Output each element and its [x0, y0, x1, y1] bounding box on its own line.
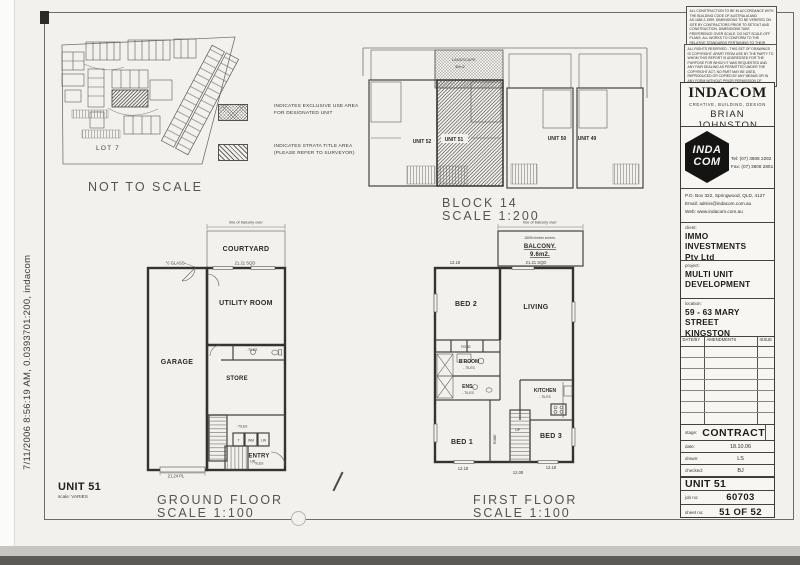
block-14-plan: LANDSCAPE 30m2 UNIT 52 UNIT 51 UNIT 50 U…: [355, 38, 655, 223]
location-street: 59 - 63 MARY STREET: [685, 307, 770, 328]
location-suburb: KINGSTON: [685, 328, 770, 337]
unit-49-label: UNIT 49: [578, 136, 597, 142]
dimension-bed3: 12.18: [546, 465, 557, 470]
site-plan-caption: NOT TO SCALE: [88, 180, 203, 194]
stairs-upper: [209, 415, 227, 461]
location-section: location: 59 - 63 MARY STREET KINGSTON: [681, 299, 774, 337]
job-label: job no:: [685, 495, 711, 500]
room-label-bed1: BED 1: [451, 439, 473, 446]
stairs-lower: [225, 446, 248, 470]
stair-up-label: UP: [250, 459, 256, 464]
logo-text-line: COM: [693, 157, 720, 169]
construction-notes: ALL CONSTRUCTION TO BE IN ACCORDANCE WIT…: [686, 6, 777, 45]
closet-label-lin: LIN: [261, 439, 267, 443]
room-label-balcony: BALCONY.: [524, 244, 556, 250]
closet-label-wm: WM: [248, 439, 254, 443]
balcony-over-note: line of balcony over: [229, 220, 263, 225]
project-name-line2: DEVELOPMENT: [685, 279, 770, 289]
scanned-architectural-sheet: 7/11/2006 8:56:19 AM, 0.0393701:200, ind…: [0, 0, 800, 565]
dimension-bed1: 12.18: [458, 466, 469, 471]
room-label-garage: GARAGE: [161, 359, 194, 366]
landscape-label: LANDSCAPE: [452, 57, 476, 62]
unit-50-label: UNIT 50: [548, 136, 567, 142]
company-tagline: CREATIVE, BUILDING, DESIGN: [681, 102, 774, 107]
room-label-living: LIVING: [523, 304, 548, 311]
email-address: Email: admin@indacom.com.au: [685, 200, 770, 208]
stair-up-label: UP: [515, 427, 521, 432]
phone-number: Tel: (07) 3808 2292: [731, 155, 773, 163]
legend-text-line: INDICATES STRATA TITLE AREA: [274, 144, 355, 151]
date-value: 18.10.06: [711, 444, 770, 450]
indacom-cube-logo: INDA COM: [685, 131, 729, 183]
amendments-empty-row: [681, 413, 774, 424]
stairs: [510, 410, 530, 462]
legend-text-line: (PLEASE REFER TO SURVEYOR): [274, 151, 355, 158]
room-label-bed2: BED 2: [455, 301, 477, 308]
scale-label: scale:: [58, 494, 70, 499]
address-section: P.O. Box 322, Springwood, QLD, 4127 Emai…: [681, 189, 774, 223]
timber-screen-note: 1800h timber screen.: [524, 236, 556, 240]
room-label-bed3: BED 3: [540, 433, 562, 440]
balcony-over-dimension: [498, 224, 583, 230]
client-section: client: IMMO INVESTMENTS Pty Ltd: [681, 223, 774, 261]
stage-issue-cell: [765, 425, 774, 440]
landscape-area-value: 30m2: [455, 64, 465, 69]
checked-row: checked: BJ: [681, 465, 774, 477]
client-name-suffix: Pty Ltd: [685, 252, 770, 261]
client-name: IMMO INVESTMENTS: [685, 231, 770, 252]
scale-value: VARIES: [71, 494, 88, 499]
block-plan-caption: BLOCK 14: [442, 196, 518, 210]
project-section: project: MULTI UNIT DEVELOPMENT: [681, 261, 774, 299]
title-block: INDACOM CREATIVE, BUILDING, DESIGN BRIAN…: [680, 82, 775, 518]
location-label: location:: [685, 301, 770, 306]
first-floor-scale: SCALE 1:100: [473, 506, 571, 520]
client-label: client:: [685, 225, 770, 230]
stage-value: CONTRACT: [702, 427, 765, 439]
balcony-over-dimension: [207, 224, 285, 230]
ground-floor-scale: SCALE 1:100: [157, 506, 255, 520]
glass-note: ½ GLASS: [166, 261, 185, 266]
drawn-value: LS: [711, 456, 770, 462]
job-number: 60703: [711, 492, 770, 503]
rear-yards: [371, 50, 641, 88]
column-header-date: DATE/BY: [681, 337, 705, 346]
sheet-label: sheet no:: [685, 510, 711, 515]
legend-text-line: INDICATES EXCLUSIVE USE AREA: [274, 104, 358, 111]
web-address: Web: www.indacom.com.au: [685, 208, 770, 216]
room-label-ens: ENS.: [462, 384, 474, 390]
column-header-issue: ISSUE: [758, 337, 774, 346]
scan-edge-strip: [0, 0, 15, 565]
first-floor-plan: line of balcony over 1800h timber screen…: [426, 214, 586, 519]
date-label: date:: [685, 444, 711, 449]
job-number-row: job no: 60703: [681, 491, 774, 505]
first-floor-caption: FIRST FLOOR: [473, 493, 577, 507]
scan-bottom-edge: [0, 556, 800, 565]
unit-dwellings: [369, 80, 643, 188]
scan-bottom-band: [0, 546, 800, 556]
print-info-text: 7/11/2006 8:56:19 AM, 0.0393701:200, ind…: [22, 255, 33, 470]
amendments-empty-row: [681, 391, 774, 402]
sheet-number: 51 OF 52: [711, 507, 770, 518]
unit-number: UNIT 51: [58, 481, 101, 493]
room-label-kitchen: KITCHEN: [534, 388, 557, 394]
project-name: MULTI UNIT: [685, 269, 770, 279]
closet-label-t: T: [237, 439, 239, 443]
copyright-notes: ALL RIGHTS RESERVED - THIS SET OF DRAWIN…: [684, 44, 777, 87]
punch-hole-mark: [291, 511, 306, 526]
drawn-row: drawn: LS: [681, 453, 774, 465]
ground-floor-plan: line of balcony over COURTYARD 21.21 SQD…: [138, 214, 318, 519]
stage-label: stage:: [685, 430, 697, 435]
sheet-number-row: sheet no: 51 OF 52: [681, 505, 774, 519]
site-highlighted-block: [112, 90, 148, 107]
dimension-top-left: 12.18: [450, 260, 461, 265]
principal-name: BRIAN JOHNSTON: [681, 109, 774, 127]
dimension-sqd: 21.21 SQD: [235, 261, 256, 266]
legend-text-line: FOR DESIGNATED UNIT: [274, 111, 358, 118]
exclusive-use-swatch: [218, 104, 248, 121]
robe-label: ROBE: [461, 345, 471, 349]
wardrobe-units: [437, 354, 453, 398]
company-header: INDACOM CREATIVE, BUILDING, DESIGN BRIAN…: [681, 83, 774, 127]
block-boundary: [363, 48, 647, 98]
balcony-area-value: 9.6m2.: [530, 252, 550, 258]
company-name: INDACOM: [681, 85, 774, 102]
unit-51-strata-hatch: [437, 80, 503, 186]
site-buildings: [62, 39, 239, 155]
drawn-label: drawn:: [685, 456, 711, 461]
dimension-center: 12.08: [513, 470, 524, 475]
project-label: project:: [685, 263, 770, 268]
dimension-pl: 21.24 PL: [168, 474, 185, 479]
amendments-table: DATE/BY AMENDMENTS ISSUE: [681, 337, 774, 425]
robe-stair-label: ROBE: [493, 434, 497, 444]
room-label-store: STORE: [226, 376, 248, 382]
room-label-courtyard: COURTYARD: [223, 246, 270, 253]
amendments-empty-row: [681, 369, 774, 380]
tiles-note-ens: - TILES: [462, 391, 474, 395]
tiles-note-kitchen: - TILES: [539, 395, 551, 399]
unit-52-label: UNIT 52: [413, 139, 432, 145]
room-label-utility: UTILITY ROOM: [219, 300, 273, 307]
column-header-amendments: AMENDMENTS: [705, 337, 758, 346]
balcony-over-note: line of balcony over: [523, 220, 557, 225]
tiles-note-wc: - TILES: [246, 348, 258, 352]
amendments-header: DATE/BY AMENDMENTS ISSUE: [681, 337, 774, 347]
date-row: date: 18.10.06: [681, 441, 774, 453]
unit-51-label: UNIT 51: [445, 137, 464, 143]
amendments-empty-row: [681, 402, 774, 413]
sheet-unit-label: UNIT 51 scale: VARIES: [58, 481, 101, 499]
lot-label: LOT 7: [96, 145, 120, 152]
checked-label: checked:: [685, 468, 711, 473]
tiles-note-hall: - TILES: [236, 425, 248, 429]
logo-section: INDA COM Tel: (07) 3808 2292 Fax: (07) 3…: [681, 127, 774, 189]
amendments-empty-row: [681, 358, 774, 369]
room-label-broom: B'ROOM: [459, 359, 479, 365]
amendments-empty-row: [681, 347, 774, 358]
tiles-note-broom: - TILES: [463, 366, 475, 370]
ground-floor-caption: GROUND FLOOR: [157, 493, 283, 507]
unit-number-row: UNIT 51: [681, 477, 774, 491]
amendments-empty-row: [681, 380, 774, 391]
strata-title-swatch: [218, 144, 248, 161]
dimension-sqd: 21.21 SQD: [526, 260, 547, 265]
glass-leader-line: [184, 263, 195, 267]
fax-number: Fax: (07) 3808 2851: [731, 163, 773, 171]
stage-row: stage: CONTRACT: [681, 425, 774, 441]
checked-value: BJ: [711, 468, 770, 474]
postal-address: P.O. Box 322, Springwood, QLD, 4127: [685, 192, 770, 200]
